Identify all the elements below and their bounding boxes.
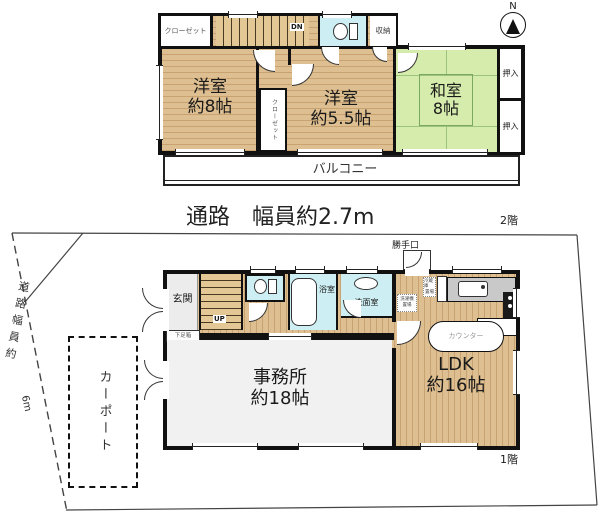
room-japanese-label: 和室8帖 [419,74,473,126]
window [322,11,352,18]
stairs-2f-dn-label: DN [290,23,304,31]
north-arrow-icon: N [494,1,532,45]
room-closet-2f: クローゼット [161,16,213,46]
interior-opening [268,333,312,340]
kitchen-sink [458,281,488,297]
window [513,350,520,395]
storage-label: 収納 [376,27,391,36]
toilet-icon-1f [254,279,277,294]
toilet-icon-2f [333,23,358,40]
wall-opening [162,289,169,331]
fridge-space-label: 冷蔵庫置場 [423,277,436,297]
carport: カーポート [68,336,138,488]
closet-2f-label: クローゼット [165,27,207,35]
toilet-tank-icon [349,23,358,40]
passage-label: 通路 幅員約2.7m [186,199,374,231]
closet-mid-label: クローゼット [270,99,277,141]
toilet-bowl-icon [333,23,348,40]
window [156,65,163,140]
room-western8-label: 洋室約8帖 [170,78,250,118]
dining-counter: カウンター [428,321,504,352]
window [228,11,258,18]
wall-opening [405,269,429,276]
window [513,288,520,318]
north-needle [506,19,520,34]
north-label: N [509,1,516,12]
balcony-label: バルコニー [270,160,420,180]
window [346,266,378,273]
room-storage-2f: 収納 [370,16,396,46]
toilet-tank-icon [268,279,277,294]
window [298,443,364,450]
sink-icon [354,277,378,290]
room-office-label: 事務所約18帖 [230,363,330,415]
burner-dot [508,304,512,308]
tatami-line [446,49,447,75]
room-oshiire-bottom: 押入 [500,101,521,152]
room-ldk-label: LDK約16帖 [418,352,494,400]
floor1-label: 1階 [500,451,518,467]
carport-label: カーポート [96,370,111,455]
floor2-label: 2階 [500,212,518,228]
bathtub-icon [291,278,317,326]
faucet-icon [481,285,485,289]
window [452,266,502,273]
window [192,443,258,450]
north-circle [500,12,526,38]
wall [392,270,396,322]
balcony-rail-line [165,180,518,181]
wall-opening [162,361,169,399]
wall [288,49,291,65]
floor-plan-page: クローゼット DN 収納 洋室約8帖 クローゼット 洋室約5.5帖 和室8帖 押… [0,0,600,518]
stairs-1f-up-label: UP [213,315,226,323]
toilet-bowl-icon [254,279,267,294]
window [420,443,478,450]
room-closet-mid-2f: クローゼット [259,88,287,152]
entrance-label: 玄関 [167,293,198,307]
fridge-space [437,276,447,302]
stairs-2f [216,16,309,46]
wall [392,348,396,446]
room-oshiire-top: 押入 [500,49,521,98]
burner-dot [508,296,512,300]
bath-label: 浴室 [319,284,335,295]
laundry-space-label: 洗濯機置場 [397,294,417,312]
room-western55-label: 洋室約5.5帖 [295,88,387,132]
window [408,43,466,50]
window [250,266,276,273]
window [295,266,325,273]
